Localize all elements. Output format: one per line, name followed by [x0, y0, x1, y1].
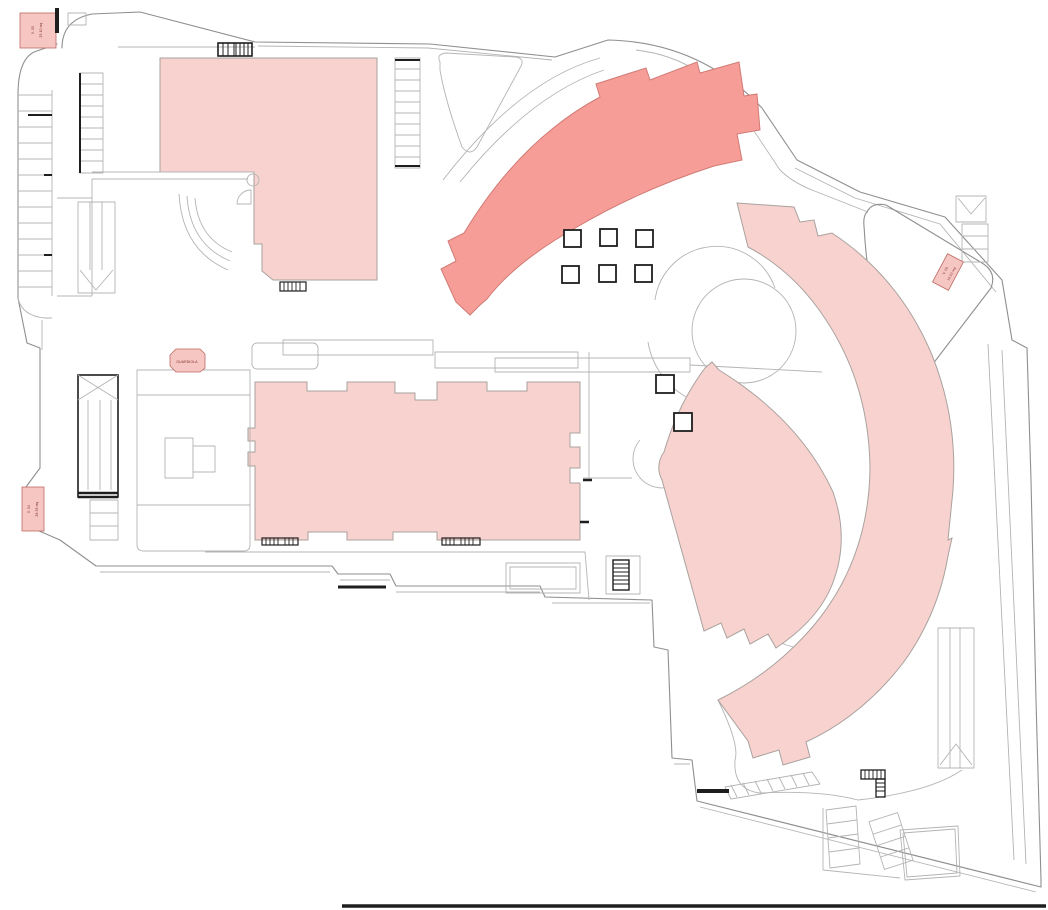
building-northwest [57, 58, 377, 296]
note-northwest: V. 05 25.10 mq [20, 13, 56, 48]
kiosk-guardiola: GUARDIOLA [170, 349, 205, 372]
steps-below-ramp [90, 500, 118, 540]
stair-symbol-south [606, 556, 640, 594]
bay-window [165, 438, 193, 478]
bay-window-inner [193, 446, 215, 472]
note-east: V. 06 15.20 mq [933, 254, 964, 291]
room-outline [252, 343, 318, 369]
note-nw-line1: V. 05 [31, 26, 35, 34]
right-strip-building [938, 628, 974, 768]
ramp-box-2 [78, 375, 118, 497]
site-plan-page: GUARDIOLA [0, 0, 1048, 910]
ramp-box-1 [78, 202, 115, 293]
ne-small-building [956, 196, 986, 222]
note-nw-line2: 25.10 mq [39, 23, 43, 38]
parking-stalls [826, 806, 960, 880]
staircase-west [80, 73, 103, 173]
note-w-line1: V. 04 [27, 505, 31, 513]
walkway-box [506, 563, 580, 593]
site-plan-drawing: GUARDIOLA [0, 0, 1048, 910]
note-west: V. 04 28.35 mq [22, 487, 44, 531]
kiosk-label: GUARDIOLA [176, 360, 198, 364]
planter-squares [562, 229, 692, 431]
striped-ramp [725, 772, 820, 799]
ne-small-building [962, 224, 988, 262]
note-w-line2: 28.35 mq [35, 502, 39, 517]
building-fan [659, 362, 841, 648]
